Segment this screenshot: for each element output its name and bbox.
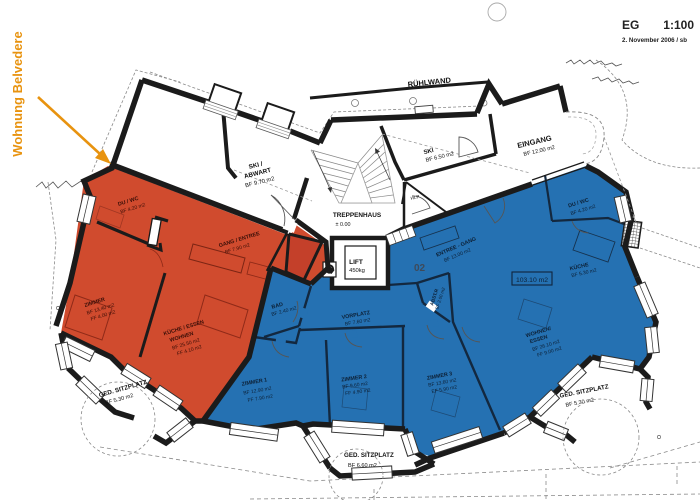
svg-text:450kg: 450kg	[349, 268, 365, 274]
svg-text:± 0.00: ± 0.00	[336, 222, 351, 228]
svg-text:2. November 2006 / sb: 2. November 2006 / sb	[622, 37, 687, 44]
svg-text:BF 6.60 m2: BF 6.60 m2	[348, 463, 377, 469]
svg-text:103.10 m2: 103.10 m2	[516, 277, 548, 284]
svg-text:Wohnung Belvedere: Wohnung Belvedere	[10, 31, 25, 156]
svg-text:LIFT: LIFT	[349, 259, 363, 266]
svg-text:GED. SITZPLATZ: GED. SITZPLATZ	[344, 452, 394, 459]
svg-text:1:100: 1:100	[663, 18, 694, 32]
svg-text:EG: EG	[622, 18, 639, 32]
svg-text:02: 02	[414, 263, 426, 274]
svg-text:TREPPENHAUS: TREPPENHAUS	[333, 212, 382, 219]
